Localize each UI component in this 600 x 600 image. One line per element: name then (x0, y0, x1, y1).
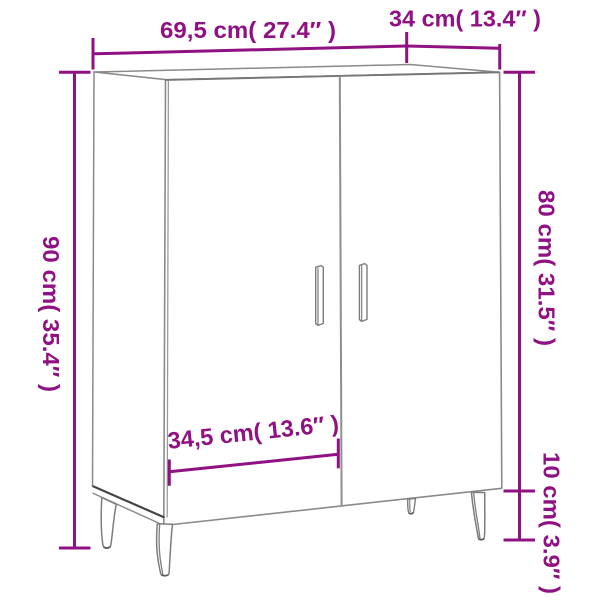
svg-text:90 cm( 35.4″ ): 90 cm( 35.4″ ) (38, 236, 64, 392)
svg-text:69,5 cm( 27.4″ ): 69,5 cm( 27.4″ ) (160, 17, 336, 43)
svg-text:80 cm( 31.5″ ): 80 cm( 31.5″ ) (533, 190, 559, 346)
svg-text:34 cm( 13.4″ ): 34 cm( 13.4″ ) (389, 6, 541, 32)
svg-text:10 cm( 3.9″ ): 10 cm( 3.9″ ) (539, 452, 565, 594)
